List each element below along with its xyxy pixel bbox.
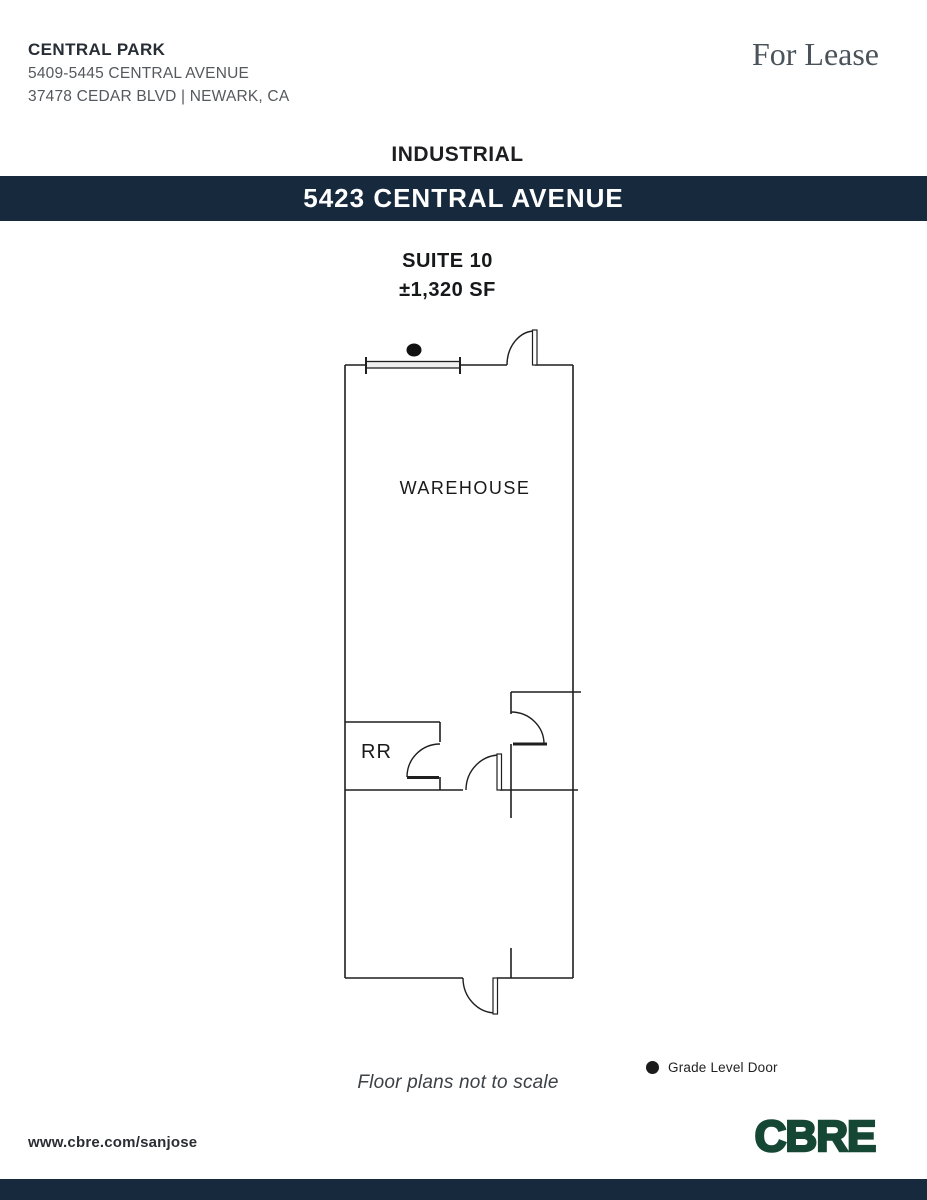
property-address-line1: 5409-5445 CENTRAL AVENUE [28,65,249,83]
website-link[interactable]: www.cbre.com/sanjose [28,1134,197,1151]
door-leaves [407,330,547,1014]
legend: Grade Level Door [646,1060,778,1075]
grade-level-door-symbol [366,344,460,375]
property-type-label: INDUSTRIAL [0,143,915,167]
address-banner: 5423 CENTRAL AVENUE [0,176,927,221]
banner-title: 5423 CENTRAL AVENUE [303,183,624,214]
not-to-scale-note: Floor plans not to scale [0,1072,916,1094]
property-name: CENTRAL PARK [28,40,165,60]
property-address-line2: 37478 CEDAR BLVD | NEWARK, CA [28,88,289,106]
svg-text:CBRE: CBRE [755,1112,876,1161]
legend-label: Grade Level Door [668,1060,778,1075]
room-label-rr: RR [361,741,401,764]
floor-plan-drawing [330,320,590,1030]
cbre-logo: CBRE [740,1108,890,1164]
door-swing-arcs [407,331,544,1013]
footer-bar [0,1179,927,1200]
flyer-page: CENTRAL PARK 5409-5445 CENTRAL AVENUE 37… [0,0,927,1200]
grade-level-door-legend-icon [646,1061,659,1074]
room-label-warehouse: WAREHOUSE [375,478,555,499]
floor-plan-walls [345,365,581,978]
grade-level-door-dot [407,344,422,357]
lease-status-label: For Lease [752,36,879,73]
suite-size: ±1,320 SF [280,279,615,302]
suite-name: SUITE 10 [280,250,615,273]
